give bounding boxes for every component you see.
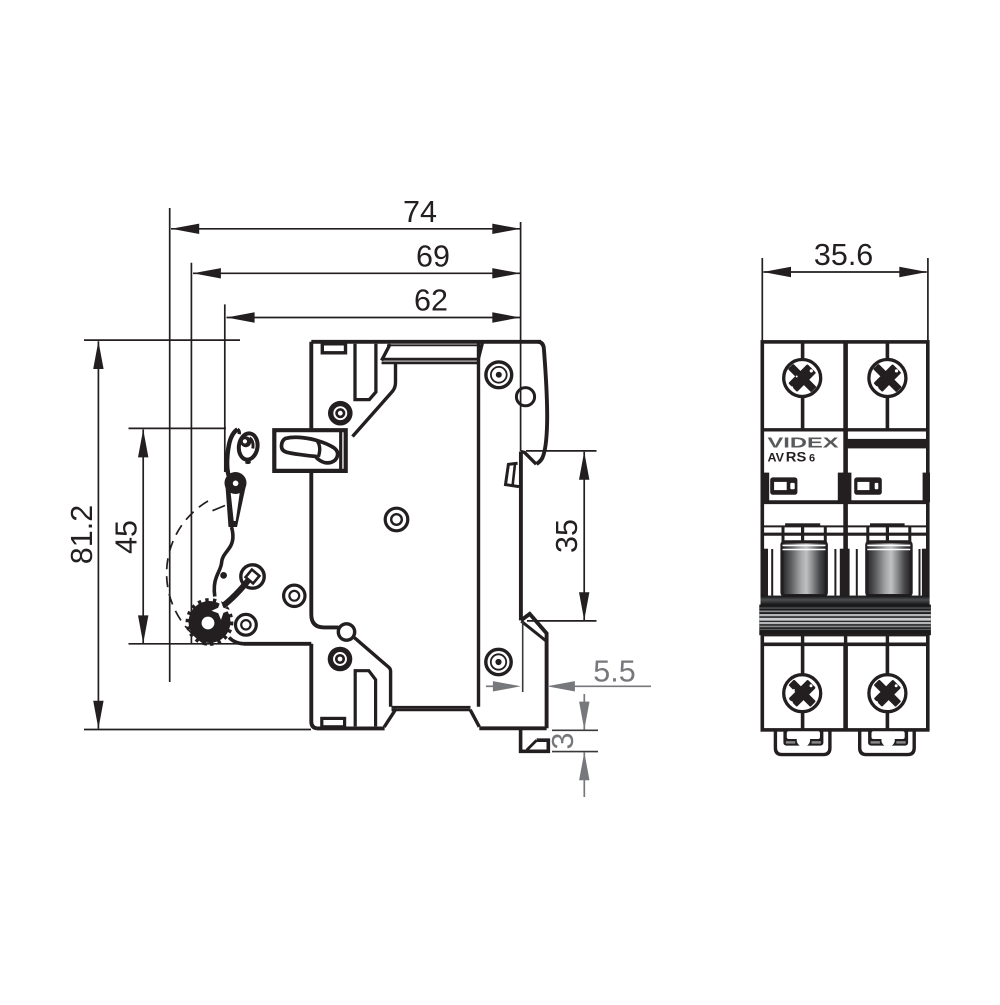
svg-text:AV: AV bbox=[768, 450, 785, 464]
svg-text:74: 74 bbox=[403, 195, 437, 229]
svg-text:RS: RS bbox=[786, 449, 807, 464]
svg-text:69: 69 bbox=[416, 239, 450, 273]
svg-text:45: 45 bbox=[110, 520, 144, 554]
svg-text:62: 62 bbox=[414, 284, 448, 318]
svg-text:35.6: 35.6 bbox=[814, 238, 873, 272]
svg-text:3: 3 bbox=[546, 733, 580, 750]
svg-text:35: 35 bbox=[550, 519, 584, 553]
svg-text:6: 6 bbox=[809, 452, 815, 464]
svg-text:81.2: 81.2 bbox=[65, 505, 99, 564]
svg-text:5.5: 5.5 bbox=[593, 654, 635, 688]
